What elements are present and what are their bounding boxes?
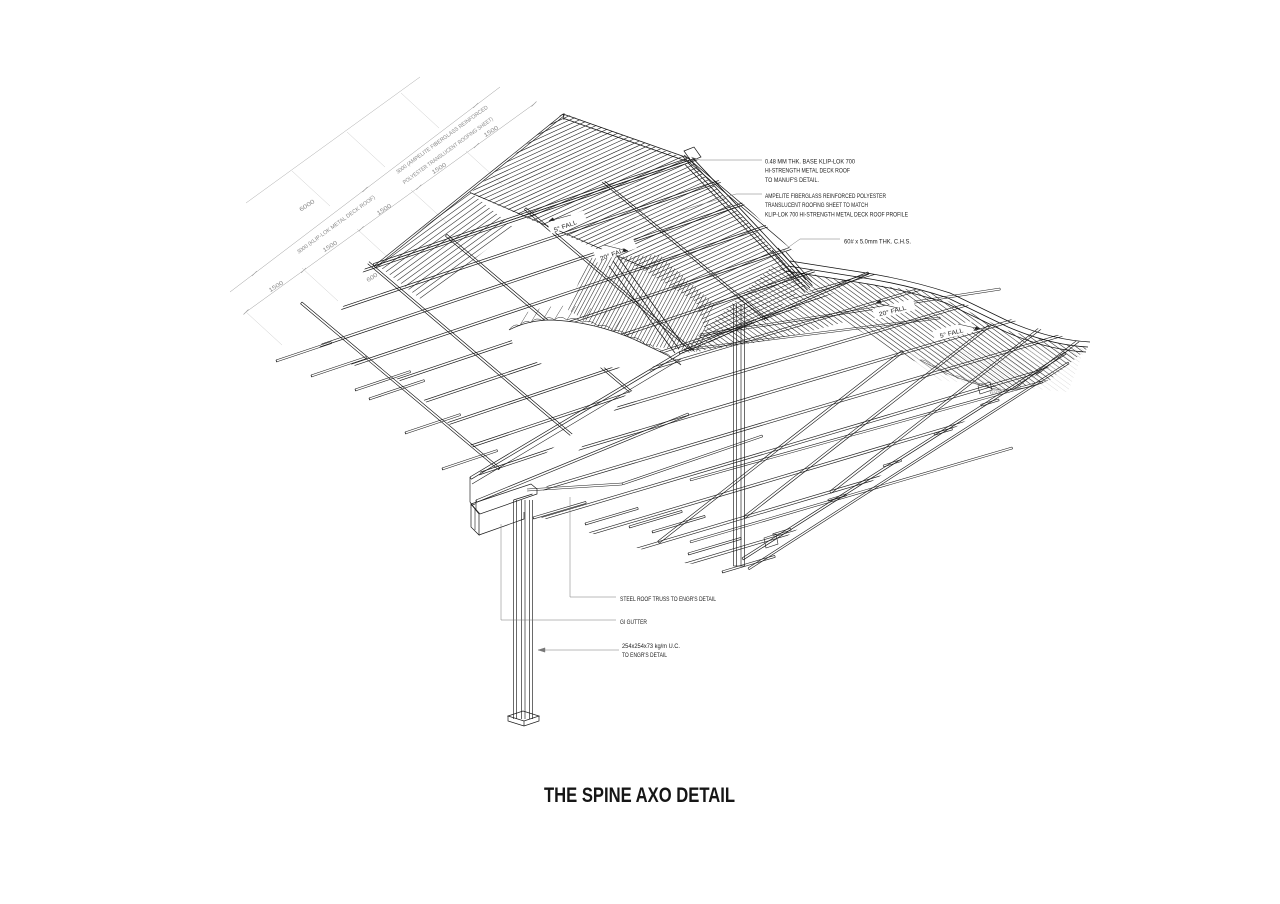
svg-text:GI GUTTER: GI GUTTER <box>620 619 647 626</box>
svg-text:254x254x73 kg/m U.C.: 254x254x73 kg/m U.C. <box>622 643 680 650</box>
svg-text:TO MANUF'S DETAIL.: TO MANUF'S DETAIL. <box>765 177 819 184</box>
svg-text:AMPELITE FIBERGLASS REINFORCED: AMPELITE FIBERGLASS REINFORCED POLYESTER <box>765 193 886 200</box>
svg-text:HI-STRENGTH METAL DECK ROOF: HI-STRENGTH METAL DECK ROOF <box>765 168 850 175</box>
svg-text:60# x 5.0mm THK. C.H.S.: 60# x 5.0mm THK. C.H.S. <box>844 239 911 246</box>
svg-text:0.48 MM THK. BASE KLIP-LOK 700: 0.48 MM THK. BASE KLIP-LOK 700 <box>765 159 855 166</box>
svg-text:TRANSLUCENT ROOFING SHEET TO M: TRANSLUCENT ROOFING SHEET TO MATCH <box>765 202 868 209</box>
svg-text:STEEL ROOF TRUSS TO ENGR'S DET: STEEL ROOF TRUSS TO ENGR'S DETAIL <box>620 596 716 603</box>
svg-text:KLIP-LOK 700 HI-STRENGTH METAL: KLIP-LOK 700 HI-STRENGTH METAL DECK ROOF… <box>765 211 908 218</box>
svg-text:TO ENGR'S DETAIL: TO ENGR'S DETAIL <box>622 652 667 659</box>
svg-text:THE SPINE AXO DETAIL: THE SPINE AXO DETAIL <box>544 784 735 807</box>
